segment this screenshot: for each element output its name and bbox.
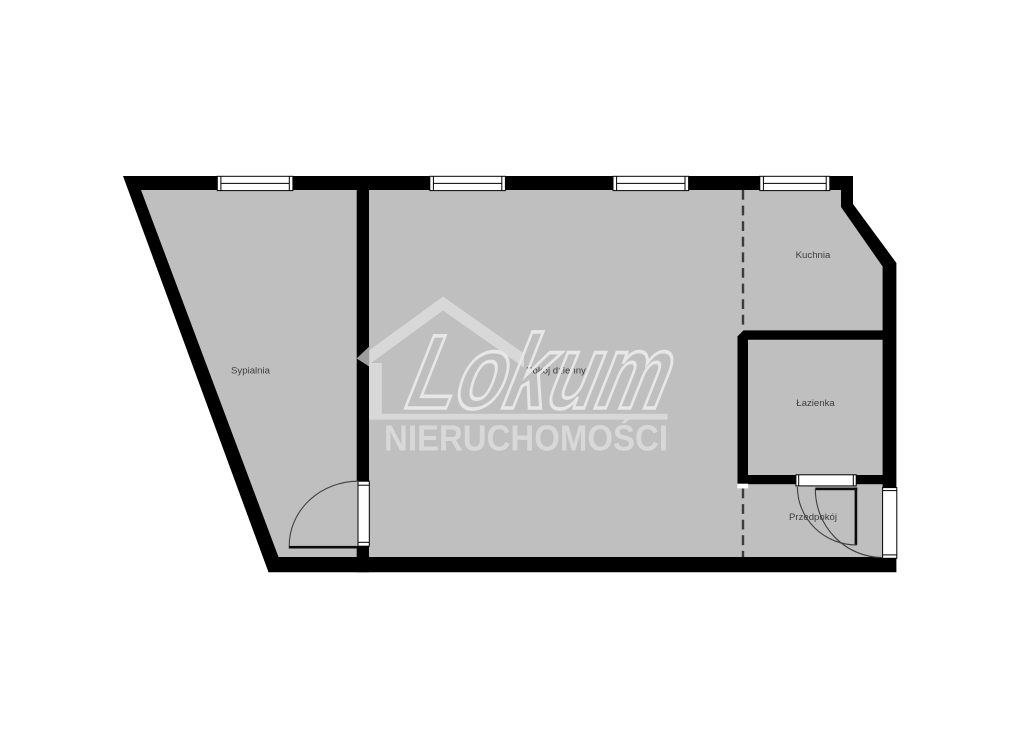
svg-text:Kuchnia: Kuchnia	[796, 250, 831, 261]
svg-text:Sypialnia: Sypialnia	[231, 365, 271, 376]
svg-text:NIERUCHOMOŚCI: NIERUCHOMOŚCI	[384, 417, 668, 459]
svg-text:Lokum: Lokum	[398, 312, 687, 430]
svg-text:Przedpokój: Przedpokój	[789, 512, 837, 523]
svg-text:Łazienka: Łazienka	[796, 398, 835, 409]
